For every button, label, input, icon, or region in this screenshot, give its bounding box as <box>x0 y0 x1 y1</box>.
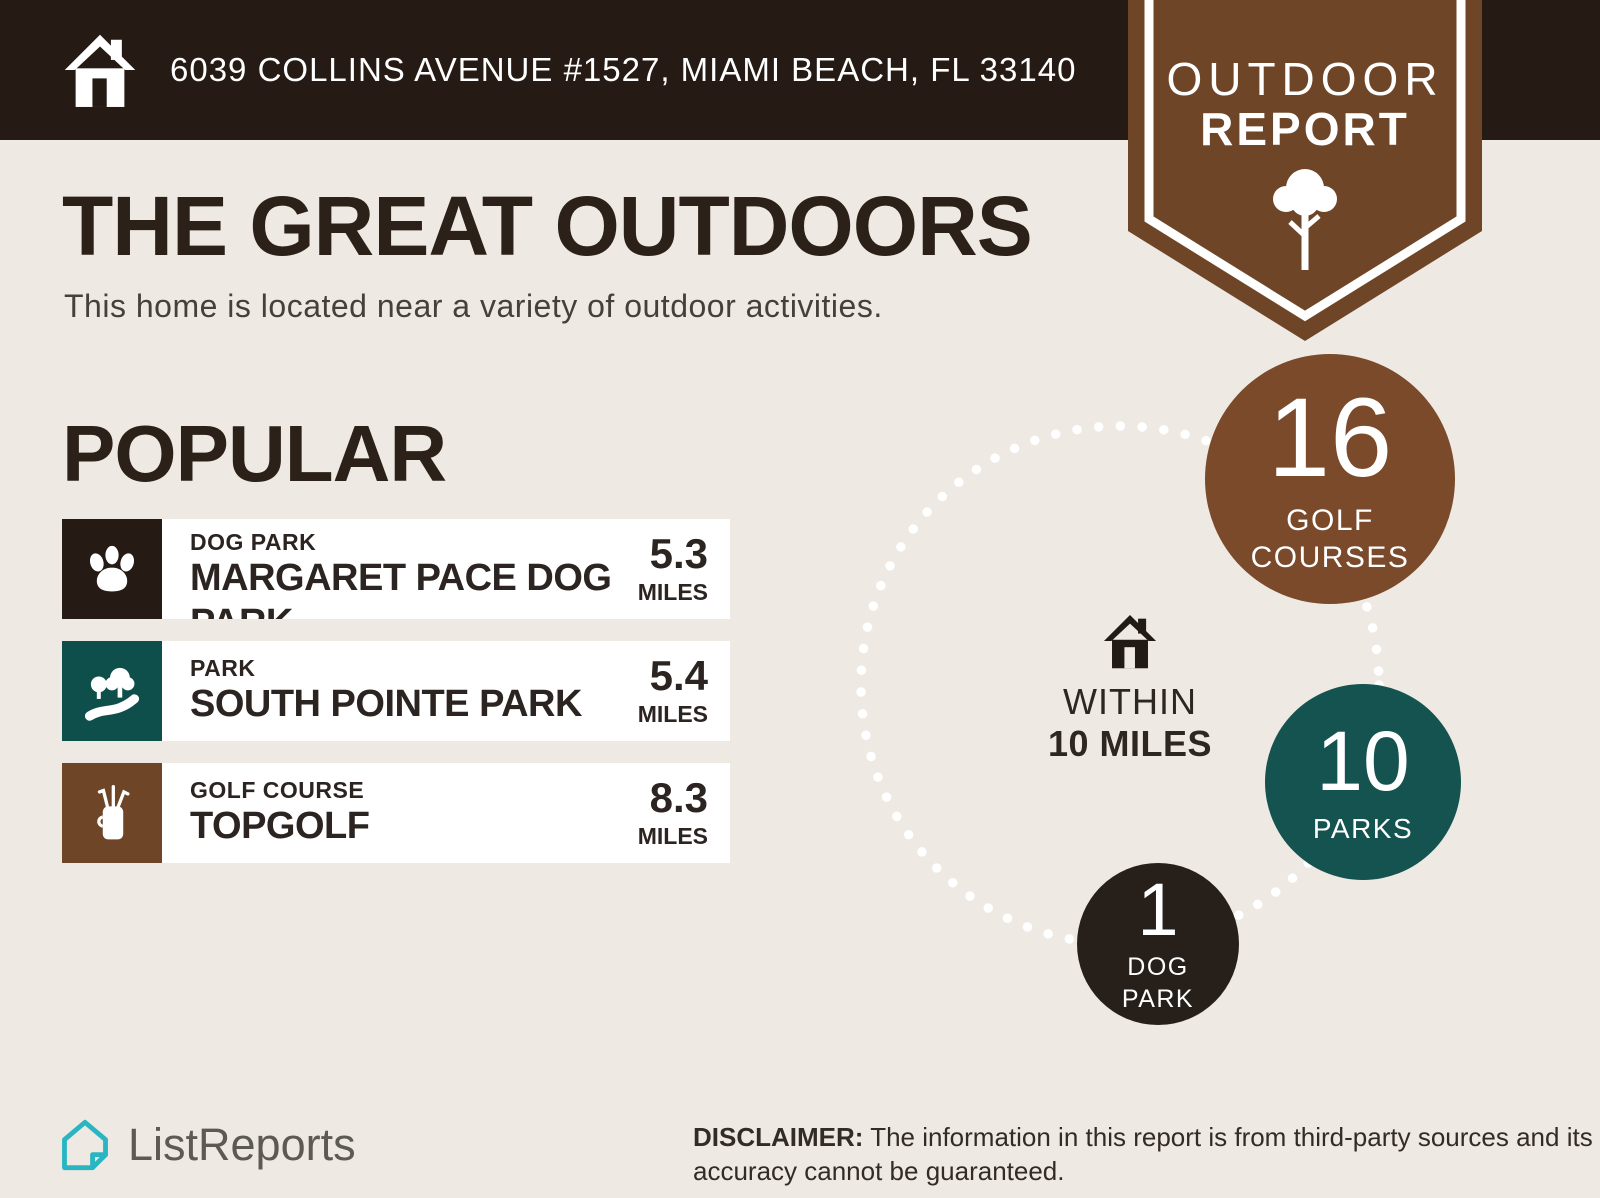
home-icon <box>1099 610 1161 672</box>
paw-icon <box>79 536 145 602</box>
disclaimer-text: DISCLAIMER: The information in this repo… <box>693 1120 1600 1188</box>
place-name: TOPGOLF <box>190 804 622 849</box>
distance-unit: MILES <box>638 579 708 606</box>
home-icon <box>58 28 142 112</box>
listreports-logo: ListReports <box>58 1116 356 1174</box>
outdoor-report-badge: OUTDOOR REPORT <box>1128 0 1482 348</box>
ribbon-title-outdoor: OUTDOOR <box>1128 52 1482 106</box>
radius-label: 10 MILES <box>1020 723 1240 765</box>
category-label: DOG PARK <box>190 529 622 556</box>
page-subtitle: This home is located near a variety of o… <box>64 288 883 325</box>
golf-courses-stat-circle: 16 GOLF COURSES <box>1205 354 1455 604</box>
golf-bag-icon <box>79 780 145 846</box>
golf-course-card: GOLF COURSE TOPGOLF 8.3 MILES <box>162 763 730 863</box>
list-item-park: PARK SOUTH POINTE PARK 5.4 MILES <box>62 641 730 741</box>
parks-stat-circle: 10 PARKS <box>1265 684 1461 880</box>
tree-icon <box>1260 162 1350 277</box>
place-name: MARGARET PACE DOG PARK <box>190 556 622 619</box>
radius-center: WITHIN 10 MILES <box>1020 610 1240 765</box>
dog-park-stat-circle: 1 DOG PARK <box>1077 863 1239 1025</box>
category-label: PARK <box>190 655 622 682</box>
distance-value: 8.3 <box>650 777 708 819</box>
ribbon-title-report: REPORT <box>1128 102 1482 156</box>
park-icon <box>79 658 145 724</box>
outdoor-report-page: 6039 COLLINS AVENUE #1527, MIAMI BEACH, … <box>0 0 1600 1198</box>
listreports-logo-text: ListReports <box>128 1119 356 1171</box>
distance-value: 5.3 <box>650 533 708 575</box>
parks-count: 10 <box>1316 719 1409 803</box>
listreports-logo-icon <box>58 1116 112 1174</box>
page-title: THE GREAT OUTDOORS <box>62 178 1032 275</box>
dog-park-count: 1 <box>1137 873 1178 947</box>
park-tile <box>62 641 162 741</box>
popular-list: DOG PARK MARGARET PACE DOG PARK 5.3 MILE… <box>62 519 730 885</box>
dog-park-card: DOG PARK MARGARET PACE DOG PARK 5.3 MILE… <box>162 519 730 619</box>
within-label: WITHIN <box>1020 681 1240 723</box>
distance-unit: MILES <box>638 701 708 728</box>
park-card: PARK SOUTH POINTE PARK 5.4 MILES <box>162 641 730 741</box>
category-label: GOLF COURSE <box>190 777 622 804</box>
golf-course-tile <box>62 763 162 863</box>
property-address: 6039 COLLINS AVENUE #1527, MIAMI BEACH, … <box>170 51 1076 89</box>
golf-courses-count: 16 <box>1268 382 1393 494</box>
place-name: SOUTH POINTE PARK <box>190 682 622 727</box>
popular-section-title: POPULAR <box>62 408 446 500</box>
distance-value: 5.4 <box>650 655 708 697</box>
distance-unit: MILES <box>638 823 708 850</box>
list-item-golf-course: GOLF COURSE TOPGOLF 8.3 MILES <box>62 763 730 863</box>
parks-label: PARKS <box>1313 811 1413 846</box>
list-item-dog-park: DOG PARK MARGARET PACE DOG PARK 5.3 MILE… <box>62 519 730 619</box>
dog-park-label: DOG PARK <box>1112 952 1204 1015</box>
golf-courses-label: GOLF COURSES <box>1240 502 1420 577</box>
dog-park-tile <box>62 519 162 619</box>
disclaimer-label: DISCLAIMER: <box>693 1122 863 1152</box>
